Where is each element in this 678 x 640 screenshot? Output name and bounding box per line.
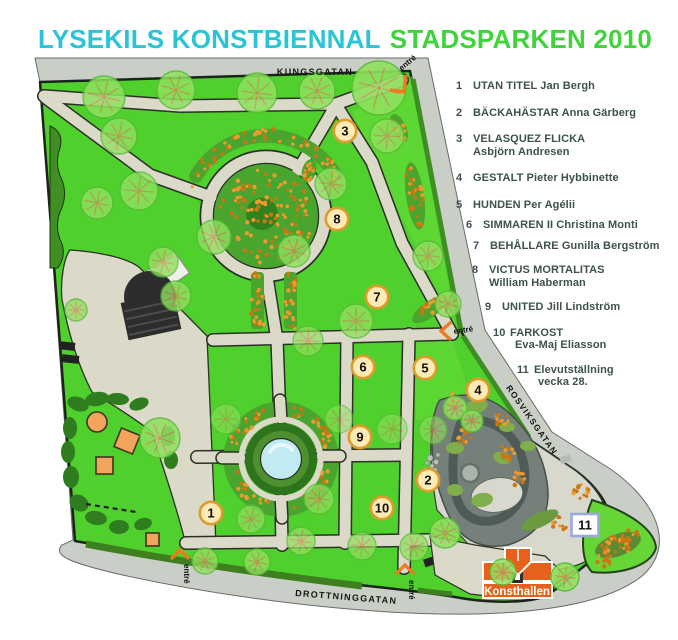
svg-text:5: 5 xyxy=(421,361,428,376)
svg-text:entré: entré xyxy=(407,580,416,600)
tree xyxy=(293,326,323,356)
map-marker-2: 2 xyxy=(417,469,439,491)
legend-item-6: 6SIMMAREN II Christina Monti xyxy=(466,219,676,232)
legend-item-2: 2BÄCKAHÄSTAR Anna Gärberg xyxy=(456,107,676,120)
legend-item-10: 10FARKOSTEva-Maj Eliasson xyxy=(493,327,676,352)
sandpit-circle xyxy=(87,412,107,432)
tree xyxy=(400,533,428,561)
tree xyxy=(419,416,447,444)
tree xyxy=(348,532,376,560)
tree xyxy=(490,559,516,585)
tree xyxy=(299,73,335,109)
tree xyxy=(278,235,310,267)
svg-text:8: 8 xyxy=(333,212,340,227)
tree xyxy=(81,187,113,219)
svg-text:9: 9 xyxy=(356,430,363,445)
legend-item-1: 1UTAN TITEL Jan Bergh xyxy=(456,80,676,93)
tree xyxy=(120,172,158,210)
tree xyxy=(83,76,125,118)
tree xyxy=(551,563,579,591)
tree xyxy=(352,61,406,115)
map-marker-11: 11 xyxy=(572,514,599,536)
title-park: STADSPARKEN 2010 xyxy=(390,24,652,54)
tree xyxy=(197,220,231,254)
tree xyxy=(315,168,347,200)
poster: Konsthallen KUNGSGATAN ROSVIKSGATAN DROT… xyxy=(0,0,678,640)
legend-item-9: 9UNITED Jill Lindström xyxy=(485,301,676,314)
tree xyxy=(140,418,180,458)
tree xyxy=(413,241,443,271)
tree xyxy=(157,71,195,109)
tree xyxy=(325,405,353,433)
legend-item-8: 8VICTUS MORTALITASWilliam Haberman xyxy=(472,264,676,289)
legend-item-3: 3VELASQUEZ FLICKAAsbjörn Andresen xyxy=(456,133,676,158)
konsthallen-label: Konsthallen xyxy=(484,586,550,598)
svg-text:10: 10 xyxy=(375,501,389,516)
map-marker-1: 1 xyxy=(200,502,222,524)
title-biennal: LYSEKILS KONSTBIENNAL xyxy=(38,24,381,54)
svg-text:2: 2 xyxy=(424,473,431,488)
tree xyxy=(339,304,373,338)
lookout-circle xyxy=(461,464,479,482)
tree xyxy=(461,410,483,432)
legend-item-4: 4GESTALT Pieter Hybbinette xyxy=(456,172,676,185)
svg-text:1: 1 xyxy=(207,506,214,521)
tree xyxy=(370,119,404,153)
map-marker-8: 8 xyxy=(326,208,348,230)
tree xyxy=(304,484,334,514)
map-marker-7: 7 xyxy=(366,286,388,308)
tree xyxy=(101,118,137,154)
map-marker-10: 10 xyxy=(371,497,393,519)
svg-text:entré: entré xyxy=(182,564,191,584)
legend-item-7: 7BEHÅLLARE Gunilla Bergström xyxy=(473,240,676,253)
legend-item-5: 5HUNDEN Per Agélii xyxy=(456,199,676,212)
page-title: LYSEKILS KONSTBIENNALSTADSPARKEN 2010 xyxy=(38,24,652,55)
svg-text:6: 6 xyxy=(359,360,366,375)
tree xyxy=(430,518,460,548)
tree xyxy=(237,505,265,533)
tree xyxy=(287,527,315,555)
street-label-kungsgatan: KUNGSGATAN xyxy=(277,67,353,77)
svg-text:7: 7 xyxy=(373,290,380,305)
tree xyxy=(65,299,87,321)
tree xyxy=(192,548,218,574)
map-marker-6: 6 xyxy=(352,356,374,378)
tree xyxy=(237,73,277,113)
tree xyxy=(244,549,270,575)
svg-text:11: 11 xyxy=(578,518,592,533)
map-marker-9: 9 xyxy=(349,426,371,448)
tree xyxy=(211,404,241,434)
svg-text:3: 3 xyxy=(341,124,348,139)
legend-item-11: 11Elevutställningvecka 28. xyxy=(517,364,676,389)
map-marker-5: 5 xyxy=(414,357,436,379)
map-marker-3: 3 xyxy=(334,120,356,142)
tree xyxy=(161,281,191,311)
tree xyxy=(148,247,178,277)
tree xyxy=(377,414,407,444)
legend: 1UTAN TITEL Jan Bergh2BÄCKAHÄSTAR Anna G… xyxy=(456,80,676,403)
